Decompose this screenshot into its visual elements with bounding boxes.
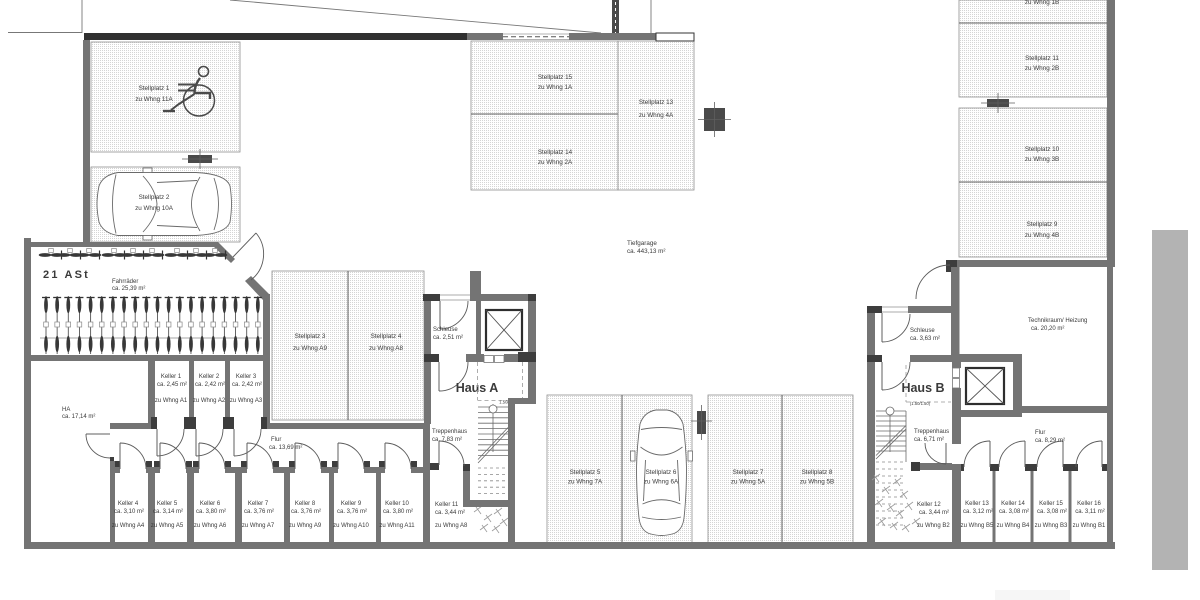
svg-text:Stellplatz 1: Stellplatz 1	[139, 85, 170, 92]
svg-text:ca. 25,39 m²: ca. 25,39 m²	[112, 286, 145, 292]
svg-text:Stellplatz 3: Stellplatz 3	[295, 333, 326, 340]
svg-text:ca. 3,76 m²: ca. 3,76 m²	[244, 509, 274, 515]
svg-text:Flur: Flur	[271, 437, 281, 443]
svg-text:zu Whng B2: zu Whng B2	[917, 523, 950, 529]
svg-text:Keller 15: Keller 15	[1039, 501, 1063, 507]
svg-text:zu Whng B4: zu Whng B4	[997, 523, 1030, 529]
svg-text:ca. 2,42 m²: ca. 2,42 m²	[195, 382, 225, 388]
svg-text:zu Whng A8: zu Whng A8	[369, 345, 403, 352]
svg-text:ca. 3,80 m²: ca. 3,80 m²	[196, 509, 226, 515]
svg-text:zu Whng 4B: zu Whng 4B	[1025, 232, 1059, 239]
svg-text:zu Whng A9: zu Whng A9	[289, 523, 322, 529]
svg-text:Stellplatz 2: Stellplatz 2	[139, 194, 170, 201]
svg-text:Stellplatz 7: Stellplatz 7	[733, 469, 764, 476]
svg-text:Keller 9: Keller 9	[341, 501, 362, 507]
svg-text:zu Whng A5: zu Whng A5	[151, 523, 184, 529]
svg-text:Stellplatz 9: Stellplatz 9	[1027, 221, 1058, 228]
svg-text:ca. 3,63 m²: ca. 3,63 m²	[910, 336, 940, 342]
svg-text:zu Whng B3: zu Whng B3	[1035, 523, 1068, 529]
svg-text:Stellplatz 15: Stellplatz 15	[538, 74, 573, 81]
svg-text:zu Whng 1A: zu Whng 1A	[538, 84, 573, 91]
svg-text:ca. 3,44 m²: ca. 3,44 m²	[919, 510, 949, 516]
svg-text:zu Whng 4A: zu Whng 4A	[639, 112, 674, 119]
svg-text:ca. 20,20 m²: ca. 20,20 m²	[1031, 326, 1064, 332]
svg-text:zu Whng 6A: zu Whng 6A	[644, 479, 679, 486]
svg-text:Fahrräder: Fahrräder	[112, 279, 138, 285]
svg-text:Haus B: Haus B	[901, 381, 944, 395]
svg-text:zu Whng 5B: zu Whng 5B	[800, 479, 834, 486]
svg-text:ca. 13,69 m²: ca. 13,69 m²	[269, 445, 302, 451]
svg-text:zu Whng B1: zu Whng B1	[1073, 523, 1106, 529]
svg-text:Haus A: Haus A	[456, 381, 499, 395]
svg-text:Keller 3: Keller 3	[236, 374, 257, 380]
svg-text:ca. 443,13 m²: ca. 443,13 m²	[627, 248, 666, 255]
svg-text:Flur: Flur	[1035, 430, 1045, 436]
svg-text:Treppenhaus: Treppenhaus	[914, 429, 949, 435]
svg-text:zu Whng 11A: zu Whng 11A	[135, 96, 173, 103]
svg-text:ca. 3,80 m²: ca. 3,80 m²	[383, 509, 413, 515]
svg-text:Keller 5: Keller 5	[157, 501, 178, 507]
svg-text:Keller 4: Keller 4	[118, 501, 139, 507]
svg-text:Keller 8: Keller 8	[295, 501, 316, 507]
svg-text:ca. 2,51 m²: ca. 2,51 m²	[433, 335, 463, 341]
svg-text:HA: HA	[62, 407, 70, 413]
svg-text:Schleuse: Schleuse	[910, 328, 935, 334]
svg-text:zu Whng B5: zu Whng B5	[961, 523, 994, 529]
svg-text:Keller 6: Keller 6	[200, 501, 221, 507]
svg-text:zu Whng A2: zu Whng A2	[193, 398, 226, 404]
svg-text:Keller 11: Keller 11	[435, 502, 459, 508]
svg-text:zu Whng 5A: zu Whng 5A	[731, 479, 766, 486]
svg-text:zu Whng A9: zu Whng A9	[293, 345, 327, 352]
svg-text:Stellplatz 8: Stellplatz 8	[802, 469, 833, 476]
svg-text:ca. 2,42 m²: ca. 2,42 m²	[232, 382, 262, 388]
svg-text:Keller 1: Keller 1	[161, 374, 182, 380]
svg-text:zu Whng A7: zu Whng A7	[242, 523, 275, 529]
svg-text:Keller 7: Keller 7	[248, 501, 269, 507]
svg-text:Treppenhaus: Treppenhaus	[432, 429, 467, 435]
svg-text:ca. 3,44 m²: ca. 3,44 m²	[435, 510, 465, 516]
svg-text:ca. 3,08 m²: ca. 3,08 m²	[999, 509, 1029, 515]
svg-text:Stellplatz 5: Stellplatz 5	[570, 469, 601, 476]
svg-text:Stellplatz 13: Stellplatz 13	[639, 99, 674, 106]
svg-text:Tiefgarage: Tiefgarage	[627, 240, 657, 247]
svg-text:ca. 17,14 m²: ca. 17,14 m²	[62, 414, 95, 420]
svg-text:Keller 13: Keller 13	[965, 501, 989, 507]
svg-text:ca. 3,11 m²: ca. 3,11 m²	[1075, 509, 1105, 515]
svg-text:ca. 2,45 m²: ca. 2,45 m²	[157, 382, 187, 388]
svg-text:zu Whng 3B: zu Whng 3B	[1025, 156, 1059, 163]
svg-text:(1.50/1.50): (1.50/1.50)	[910, 401, 931, 406]
svg-text:zu Whng A3: zu Whng A3	[230, 398, 263, 404]
svg-text:zu Whng 2A: zu Whng 2A	[538, 159, 573, 166]
svg-text:zu Whng 10A: zu Whng 10A	[135, 205, 174, 212]
svg-text:ca. 6,71 m²: ca. 6,71 m²	[914, 437, 944, 443]
svg-text:Keller 10: Keller 10	[385, 501, 409, 507]
svg-text:ca. 3,10 m²: ca. 3,10 m²	[114, 509, 144, 515]
svg-text:Keller 16: Keller 16	[1077, 501, 1101, 507]
svg-text:zu Whng 7A: zu Whng 7A	[568, 479, 603, 486]
svg-text:Stellplatz 10: Stellplatz 10	[1025, 146, 1060, 153]
svg-text:ca. 3,76 m²: ca. 3,76 m²	[337, 509, 367, 515]
svg-text:ca. 3,14 m²: ca. 3,14 m²	[153, 509, 183, 515]
svg-text:zu Whng A10: zu Whng A10	[333, 523, 369, 529]
svg-text:zu Whng A8: zu Whng A8	[435, 523, 468, 529]
svg-text:Stellplatz 4: Stellplatz 4	[371, 333, 402, 340]
svg-text:Stellplatz 11: Stellplatz 11	[1025, 55, 1059, 62]
svg-text:ca. 3,76 m²: ca. 3,76 m²	[291, 509, 321, 515]
svg-text:Technikraum/ Heizung: Technikraum/ Heizung	[1028, 318, 1087, 324]
svg-text:zu Whng A4: zu Whng A4	[112, 523, 145, 529]
svg-text:Keller 14: Keller 14	[1001, 501, 1025, 507]
svg-text:ca. 3,08 m²: ca. 3,08 m²	[1037, 509, 1067, 515]
svg-text:Stellplatz 6: Stellplatz 6	[646, 469, 677, 476]
svg-text:Keller 2: Keller 2	[199, 374, 220, 380]
svg-text:zu Whng A11: zu Whng A11	[379, 523, 415, 529]
svg-text:Keller 12: Keller 12	[917, 502, 941, 508]
svg-text:zu Whng 1B: zu Whng 1B	[1025, 0, 1059, 6]
svg-text:Stellplatz 14: Stellplatz 14	[538, 149, 573, 156]
svg-text:zu Whng A6: zu Whng A6	[194, 523, 227, 529]
svg-text:21 ASt: 21 ASt	[43, 269, 90, 281]
svg-text:Schleuse: Schleuse	[433, 327, 458, 333]
svg-text:ca. 3,12 m²: ca. 3,12 m²	[963, 509, 993, 515]
svg-text:zu Whng A1: zu Whng A1	[155, 398, 188, 404]
svg-text:zu Whng 2B: zu Whng 2B	[1025, 65, 1059, 72]
